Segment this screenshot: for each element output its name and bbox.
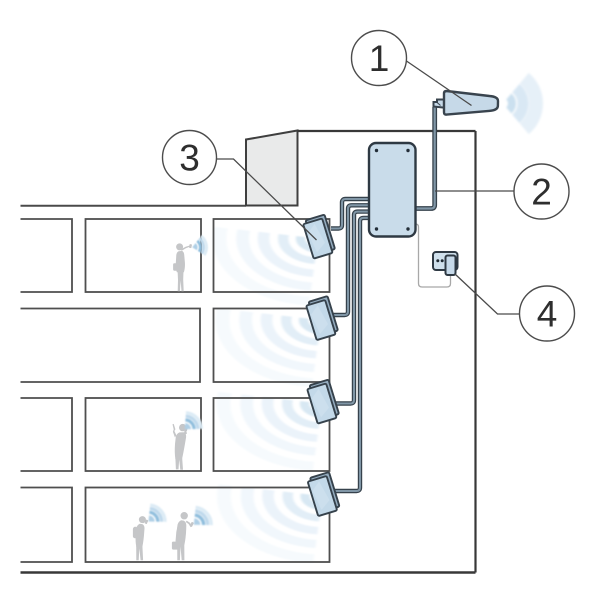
svg-text:4: 4: [537, 294, 558, 335]
svg-text:2: 2: [531, 172, 552, 213]
svg-text:1: 1: [369, 38, 390, 79]
svg-text:3: 3: [179, 138, 200, 179]
